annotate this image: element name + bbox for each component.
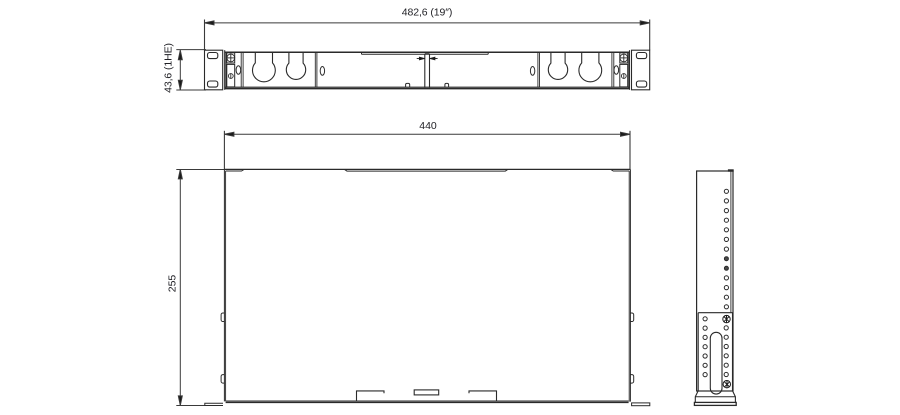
svg-text:482,6 (19″): 482,6 (19″)	[402, 7, 452, 19]
svg-text:255: 255	[167, 275, 179, 293]
svg-text:440: 440	[419, 120, 437, 132]
svg-text:43,6 (1HE): 43,6 (1HE)	[162, 43, 174, 93]
